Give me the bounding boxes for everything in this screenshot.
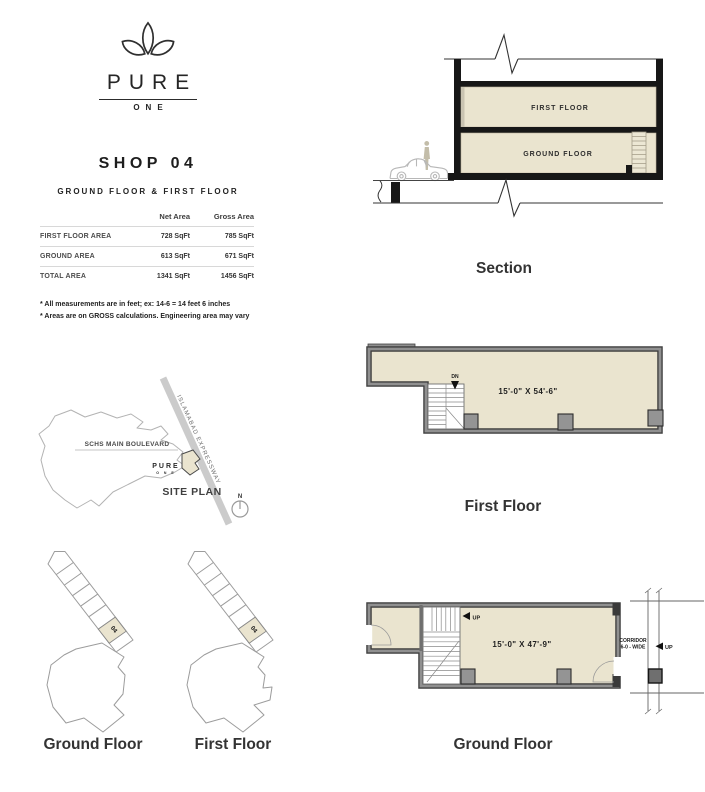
col-gross-area: Gross Area xyxy=(190,212,254,221)
shop-subtitle: GROUND FLOOR & FIRST FLOOR xyxy=(38,187,258,196)
building-blob-outline xyxy=(47,643,125,732)
row-gross: 785 SqFt xyxy=(190,233,254,240)
road-column xyxy=(391,182,400,203)
expressway-road xyxy=(163,378,229,524)
ground-floor-plan-label: Ground Floor xyxy=(403,736,603,754)
boulevard-label: SCHS MAIN BOULEVARD xyxy=(85,441,170,448)
left-break-squiggle xyxy=(378,181,382,202)
ground-break-zigzag xyxy=(498,180,520,216)
north-label: N xyxy=(238,494,242,500)
notes: * All measurements are in feet; ex: 14-6… xyxy=(40,299,300,322)
staircase xyxy=(428,384,464,429)
wall-block-top xyxy=(613,603,621,616)
unit-divisions xyxy=(196,563,255,630)
car-icon xyxy=(390,159,448,181)
key-plan-ground: 04 xyxy=(28,548,153,734)
shop-title: SHOP 04 xyxy=(48,155,248,173)
row-net: 613 SqFt xyxy=(136,253,190,260)
key-plan-first-label: First Floor xyxy=(168,736,298,754)
floor-slab xyxy=(448,173,663,180)
first-floor-plan-drawing: DN 15'-0" X 54'-6" xyxy=(360,340,705,450)
staircase xyxy=(423,607,460,684)
building-blob-outline xyxy=(187,643,272,732)
stair-direction-label: DN xyxy=(451,374,459,380)
window-strip xyxy=(461,87,465,127)
key-plan-first: 04 xyxy=(168,548,293,734)
table-header-row: Net Area Gross Area xyxy=(40,206,254,226)
row-label: FIRST FLOOR AREA xyxy=(40,233,136,240)
corridor-column xyxy=(649,669,663,683)
plan-sheet: PURE ONE SHOP 04 GROUND FLOOR & FIRST FL… xyxy=(0,0,705,792)
table-row: FIRST FLOOR AREA 728 SqFt 785 SqFt xyxy=(40,226,254,246)
note-line: * Areas are on GROSS calculations. Engin… xyxy=(40,311,300,323)
expressway-label: ISLAMABAD EXPRESSWAY xyxy=(175,394,221,485)
roof-slab xyxy=(458,81,660,87)
unit-strip-outline xyxy=(188,552,273,653)
row-net: 728 SqFt xyxy=(136,233,190,240)
row-label: GROUND AREA xyxy=(40,253,136,260)
col-net-area: Net Area xyxy=(136,212,190,221)
brand-logo: PURE ONE xyxy=(70,16,226,112)
right-wall xyxy=(656,59,663,173)
north-arrow-icon: N xyxy=(232,494,248,517)
row-gross: 671 SqFt xyxy=(190,253,254,260)
mid-slab xyxy=(458,127,660,133)
corridor-label-line2: 6-0 - WIDE xyxy=(621,645,646,651)
site-brand-sub: O N E xyxy=(156,471,176,475)
row-gross: 1456 SqFt xyxy=(190,273,254,280)
section-drawing: FIRST FLOOR GROUND FLOOR xyxy=(370,15,705,260)
lotus-icon xyxy=(116,16,180,66)
first-floor-plan-label: First Floor xyxy=(403,498,603,516)
section-ground-floor-label: GROUND FLOOR xyxy=(523,151,593,158)
corridor-lines xyxy=(630,588,704,714)
left-wall xyxy=(454,59,461,173)
brand-name: PURE xyxy=(70,71,226,95)
table-row: GROUND AREA 613 SqFt 671 SqFt xyxy=(40,246,254,266)
room-dimension: 15'-0" X 47'-9" xyxy=(492,640,551,649)
site-plan-drawing: ISLAMABAD EXPRESSWAY SCHS MAIN BOULEVARD… xyxy=(25,372,260,532)
corridor-label-line1: CORRIDOR xyxy=(619,638,647,644)
key-plan-ground-label: Ground Floor xyxy=(28,736,158,754)
site-plan-label: SITE PLAN xyxy=(162,486,221,498)
row-net: 1341 SqFt xyxy=(136,273,190,280)
row-label: TOTAL AREA xyxy=(40,273,136,280)
unit-divisions xyxy=(56,563,115,630)
section-first-floor-label: FIRST FLOOR xyxy=(531,105,589,112)
roof-break-zigzag xyxy=(495,35,518,73)
corridor-up-label: UP xyxy=(665,645,673,651)
stair-direction-label: UP xyxy=(473,616,481,622)
brand-subname: ONE xyxy=(70,103,226,112)
section-label: Section xyxy=(404,260,604,278)
site-brand-label: PURE xyxy=(152,463,179,470)
ground-floor-plan-drawing: UP 15'-0" X 47'-9" CORRIDOR 6-0 - WIDE U… xyxy=(360,585,705,717)
note-line: * All measurements are in feet; ex: 14-6… xyxy=(40,299,300,311)
table-row: TOTAL AREA 1341 SqFt 1456 SqFt xyxy=(40,266,254,286)
room-dimension: 15'-0" X 54'-6" xyxy=(498,387,557,396)
area-table: Net Area Gross Area FIRST FLOOR AREA 728… xyxy=(40,206,254,286)
unit-strip-outline xyxy=(48,552,133,653)
brand-divider xyxy=(99,99,197,100)
